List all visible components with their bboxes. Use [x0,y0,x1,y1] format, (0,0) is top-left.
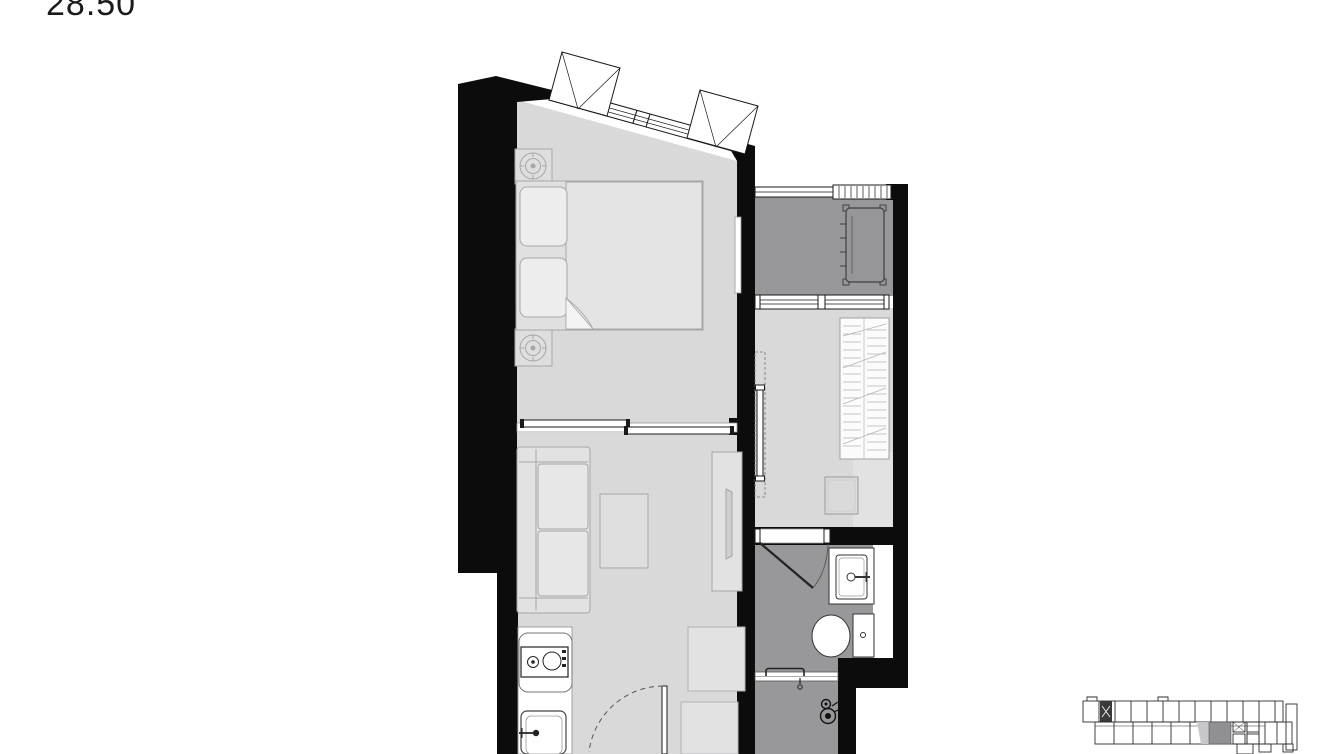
sofa [517,447,590,613]
balcony [840,205,886,285]
key-plan-elevator-core [1233,722,1259,754]
wall-bath-bottom [838,658,908,688]
key-plan-highlighted-unit [1209,722,1231,744]
washbasin-icon [829,548,874,604]
stool [825,477,858,514]
page: 28.50 [0,0,1342,754]
coffee-table [600,494,648,568]
louver-screen [833,185,891,199]
awning-window-icon [687,90,758,154]
toilet-icon [812,614,874,657]
wall-right [893,186,908,688]
key-plan [1083,697,1297,754]
floor-plan-canvas [0,0,1342,754]
nightstand-lamp-icon [520,153,546,179]
pillow [520,187,567,246]
kitchen-sink-icon [519,711,566,754]
cooktop-icon [519,633,572,692]
nightstand [515,149,552,184]
key-plan-right-block [1259,722,1292,744]
wall-panel [735,217,741,293]
ac-condenser-unit-icon [840,205,886,285]
wardrobe-icon [840,318,889,459]
mattress [566,182,702,329]
balcony-railing [755,187,835,197]
pillow [520,258,567,317]
key-plan-top-row [1083,701,1283,722]
wall-shower-right [838,688,856,754]
awning-window-icon [549,52,620,116]
tv-icon [726,489,732,559]
dressing-window [755,295,889,309]
key-plan-bottom-row [1095,722,1265,744]
kitchen [518,627,572,754]
double-bed [516,181,703,330]
wall-left-lower [497,573,518,754]
dining-table [688,627,745,691]
nightstand-lamp-icon [520,335,546,361]
key-plan-shaded-unit [1197,722,1209,744]
dining-table [681,702,738,754]
dressing-area-accent-floor [853,452,893,527]
tv-console [712,452,742,591]
nightstand [515,329,552,366]
